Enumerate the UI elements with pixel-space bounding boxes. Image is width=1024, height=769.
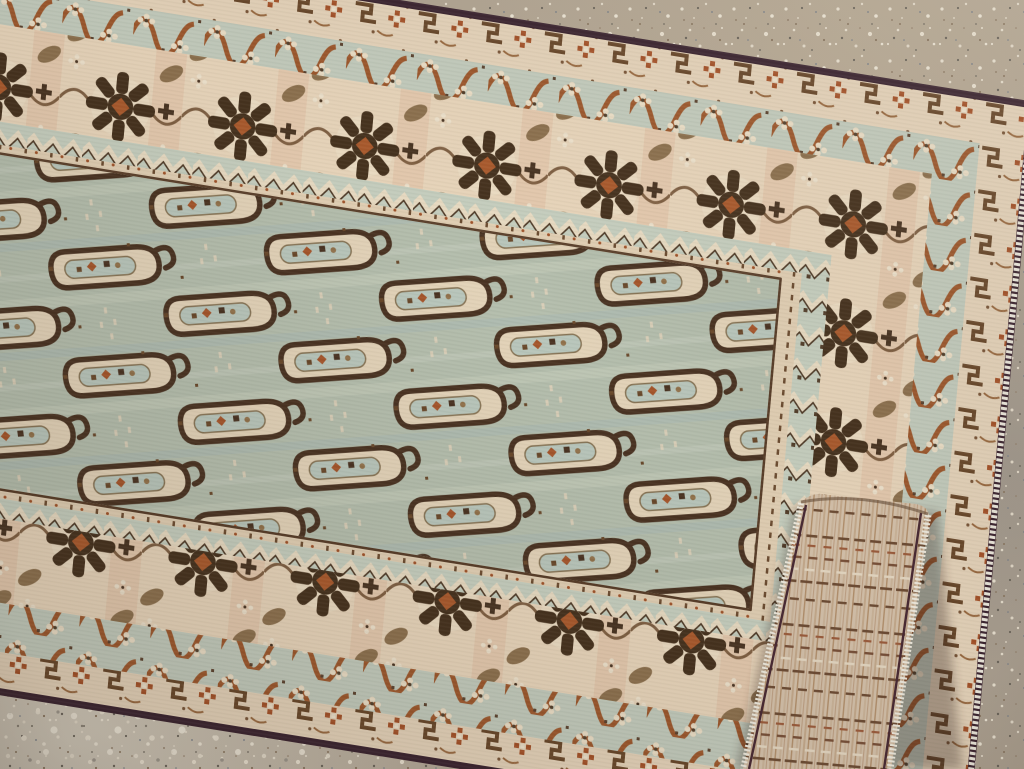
- rug-photograph: [0, 0, 1024, 769]
- photo-stage: Antique hand-knotted Persian runner rug …: [0, 0, 1024, 769]
- vignette: [0, 0, 1024, 769]
